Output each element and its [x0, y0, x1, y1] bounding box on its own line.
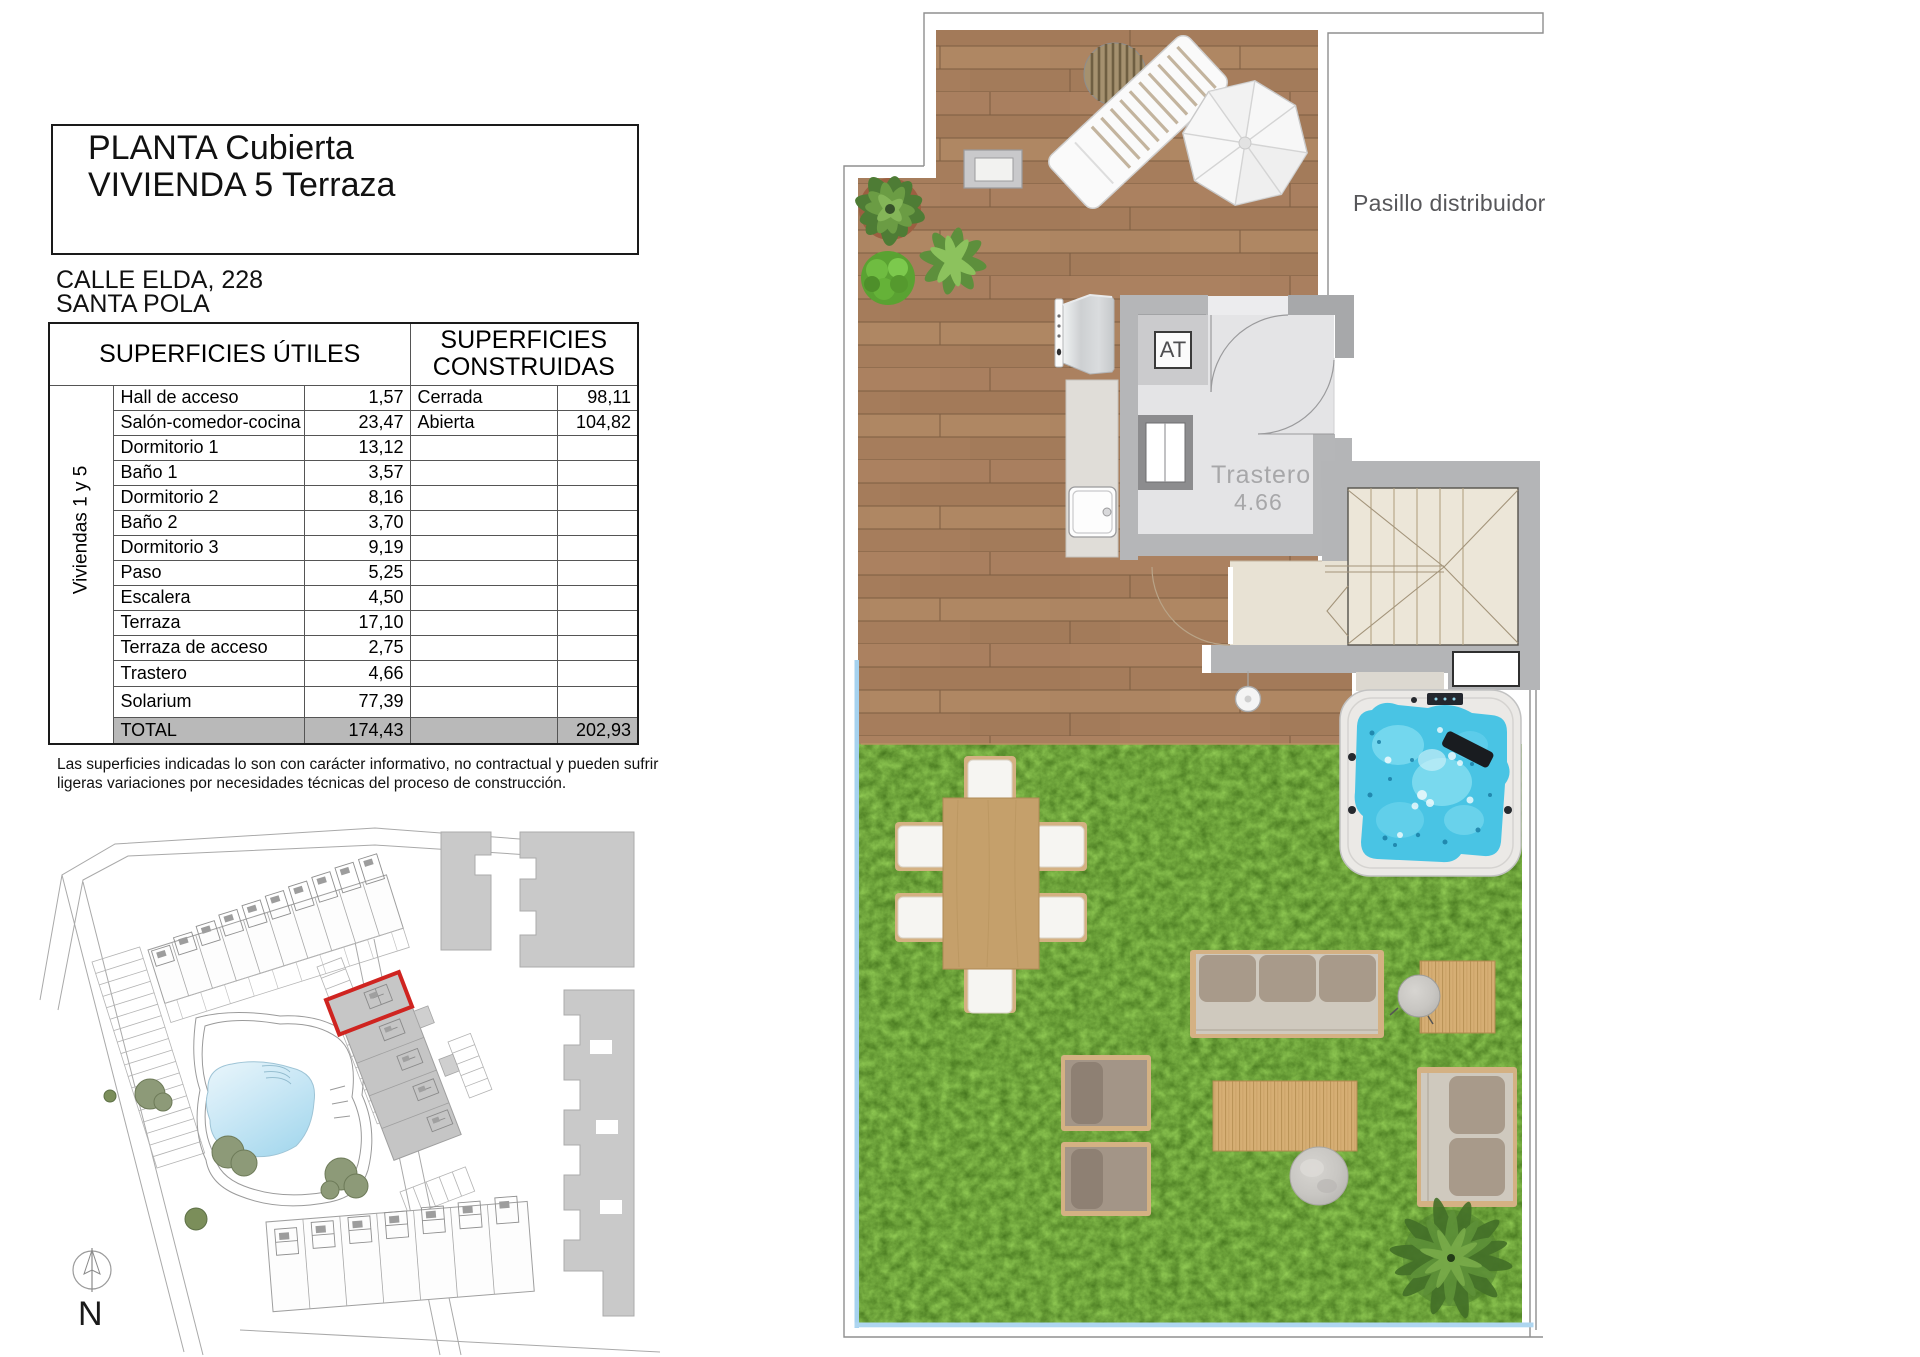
svg-text:4.66: 4.66 [1234, 489, 1283, 515]
svg-text:Pasillo distribuidor: Pasillo distribuidor [1353, 190, 1546, 216]
svg-text:N: N [78, 1295, 103, 1333]
svg-text:Trastero: Trastero [1211, 461, 1311, 489]
svg-text:AT: AT [1160, 337, 1186, 362]
